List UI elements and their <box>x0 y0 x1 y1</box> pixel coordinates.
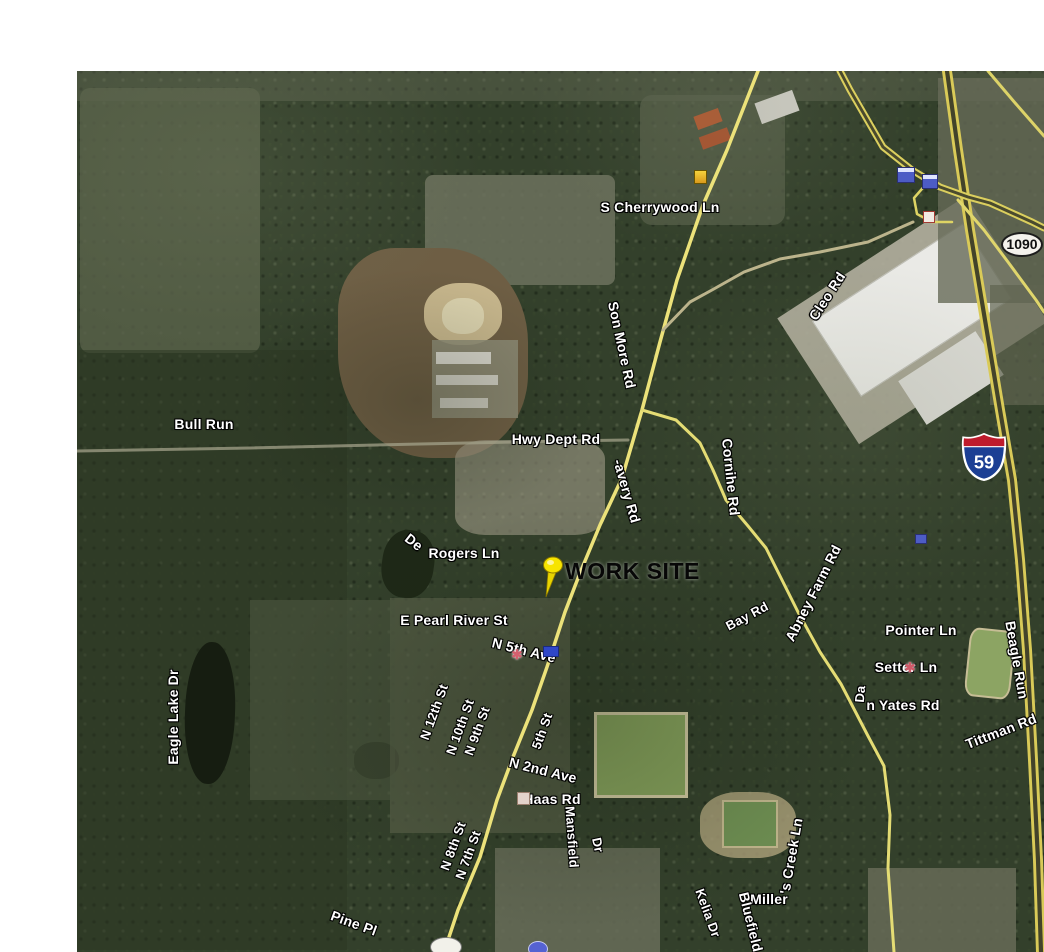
road-frontage-ne <box>988 71 1044 136</box>
interstate-59-shield: 59 <box>961 433 1007 481</box>
route-1090-shield: 1090 <box>1001 232 1043 257</box>
work-site-label: WORK SITE <box>565 558 700 585</box>
poi-services-icon[interactable] <box>922 174 938 189</box>
road-label-eagle-lake-dr: Eagle Lake Dr <box>165 669 181 764</box>
svg-text:59: 59 <box>974 451 994 472</box>
poi-square-icon[interactable] <box>923 211 935 223</box>
map-stage: S Cherrywood LnCleo RdSon More RdHwy Dep… <box>77 71 1044 952</box>
road-label-hwy-dept-rd: Hwy Dept Rd <box>512 431 601 447</box>
road-highway-crossing <box>840 71 1044 228</box>
poi-car-icon[interactable] <box>543 646 559 657</box>
road-label-e-pearl-river-st: E Pearl River St <box>400 612 507 628</box>
road-label-dr: Dr <box>589 836 607 854</box>
road-label-n-yates-rd: n Yates Rd <box>866 697 939 713</box>
pushpin-icon <box>537 556 567 600</box>
poi-haas-icon[interactable] <box>517 792 530 805</box>
poi-circle-partial-icon[interactable] <box>528 941 548 952</box>
shield-partial[interactable] <box>430 937 462 952</box>
road-cleo-rd <box>663 222 913 330</box>
road-label-rogers-ln: Rogers Ln <box>428 545 499 561</box>
poi-flower-icon-2[interactable]: ✱ <box>903 661 917 674</box>
road-label-bull-run: Bull Run <box>174 416 233 432</box>
road-label-pointer-ln: Pointer Ln <box>885 622 956 638</box>
interstate-shield-graphic: 59 <box>961 433 1007 481</box>
road-branch-se-corinne <box>642 410 894 952</box>
road-label-haas-rd: Haas Rd <box>523 791 580 807</box>
road-highway-crossing <box>840 71 1044 228</box>
poi-lodging-icon[interactable] <box>897 167 915 183</box>
poi-blue-small-icon[interactable] <box>915 534 927 544</box>
road-label-s-cherrywood-ln: S Cherrywood Ln <box>601 199 720 215</box>
poi-flower-icon[interactable]: ✱ <box>510 648 524 661</box>
work-site-pushpin[interactable] <box>537 556 567 600</box>
satellite-map[interactable]: S Cherrywood LnCleo RdSon More RdHwy Dep… <box>77 71 1044 952</box>
poi-yellow-icon[interactable] <box>694 170 707 184</box>
